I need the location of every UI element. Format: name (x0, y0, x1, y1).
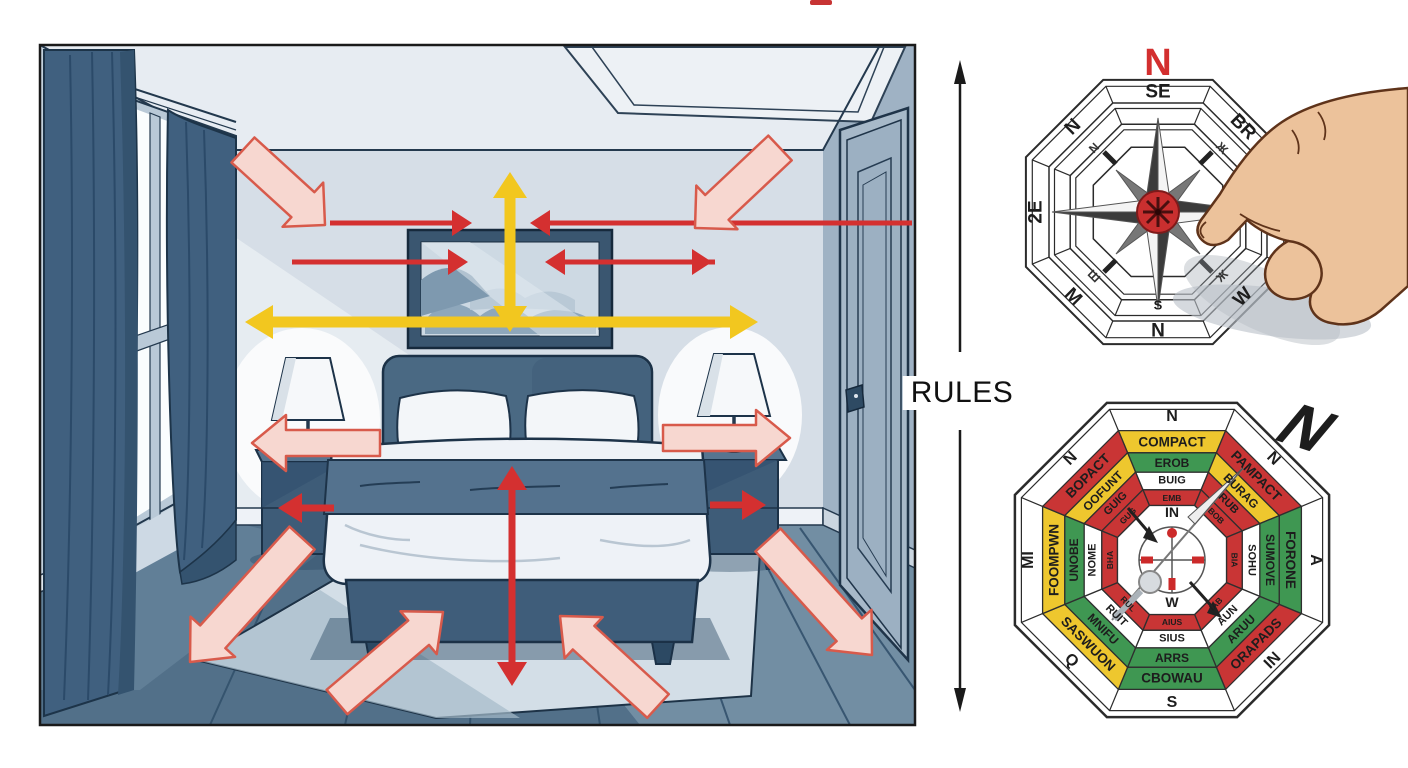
bagua-ring2-s: ARRS (1155, 652, 1189, 664)
bagua-ring1-s: CBOWAU (1141, 671, 1203, 685)
page: RULES N SE BR W N M 2E N S N Ж Ш Ж N N N… (0, 0, 1408, 768)
bagua-ring4-n: EMB (1163, 494, 1182, 503)
bagua-ring1-w: FOOMPWN (1047, 524, 1061, 596)
bagua-ring3-s: SIUS (1159, 634, 1185, 645)
bagua-ring1-n: COMPACT (1138, 435, 1205, 449)
compass-label-w: 2E (1027, 200, 1046, 223)
bagua-ring2-n: EROB (1155, 457, 1190, 469)
bagua-ring4-s: AIUS (1162, 618, 1182, 627)
bagua-outer-e: A (1307, 554, 1323, 566)
bagua-inner-top: IN (1165, 505, 1179, 519)
compass-north-label: N (1144, 44, 1171, 82)
bagua-ring1-e: FORONE (1283, 531, 1297, 589)
door-handle (846, 385, 864, 412)
bagua-inner-bottom: W (1165, 595, 1178, 609)
arrowhead-up (954, 60, 966, 84)
bagua-outer-n: N (1166, 409, 1178, 425)
needle-north-dot (1167, 528, 1177, 538)
arrowhead-down (954, 688, 966, 712)
bagua-ring4-w: BHA (1106, 551, 1115, 569)
door (840, 108, 908, 660)
top-edge-red-mark (810, 0, 832, 5)
magnifier-head (1139, 571, 1161, 593)
bagua-ring3-e: SOHU (1246, 544, 1257, 576)
bagua-outer-w: MI (1021, 551, 1037, 569)
compass-label-inner-s: S (1154, 299, 1163, 312)
bagua-ring3-n: BUIG (1158, 476, 1186, 487)
illustration-canvas (0, 0, 1408, 768)
rules-title: RULES (903, 376, 1022, 410)
compass-label-top: SE (1145, 83, 1170, 102)
ceiling-tray (565, 47, 905, 122)
bagua-ring2-w: UNOBE (1068, 538, 1080, 581)
compass-label-s: N (1151, 322, 1165, 341)
bagua-outer-s: S (1167, 695, 1178, 711)
bagua-ring4-e: BIA (1230, 553, 1239, 568)
bagua-ring2-e: SUMOVE (1264, 534, 1276, 586)
compass-diagram (1026, 80, 1408, 363)
bedroom-illustration (40, 45, 915, 725)
bagua-ring3-w: NOME (1088, 544, 1099, 577)
